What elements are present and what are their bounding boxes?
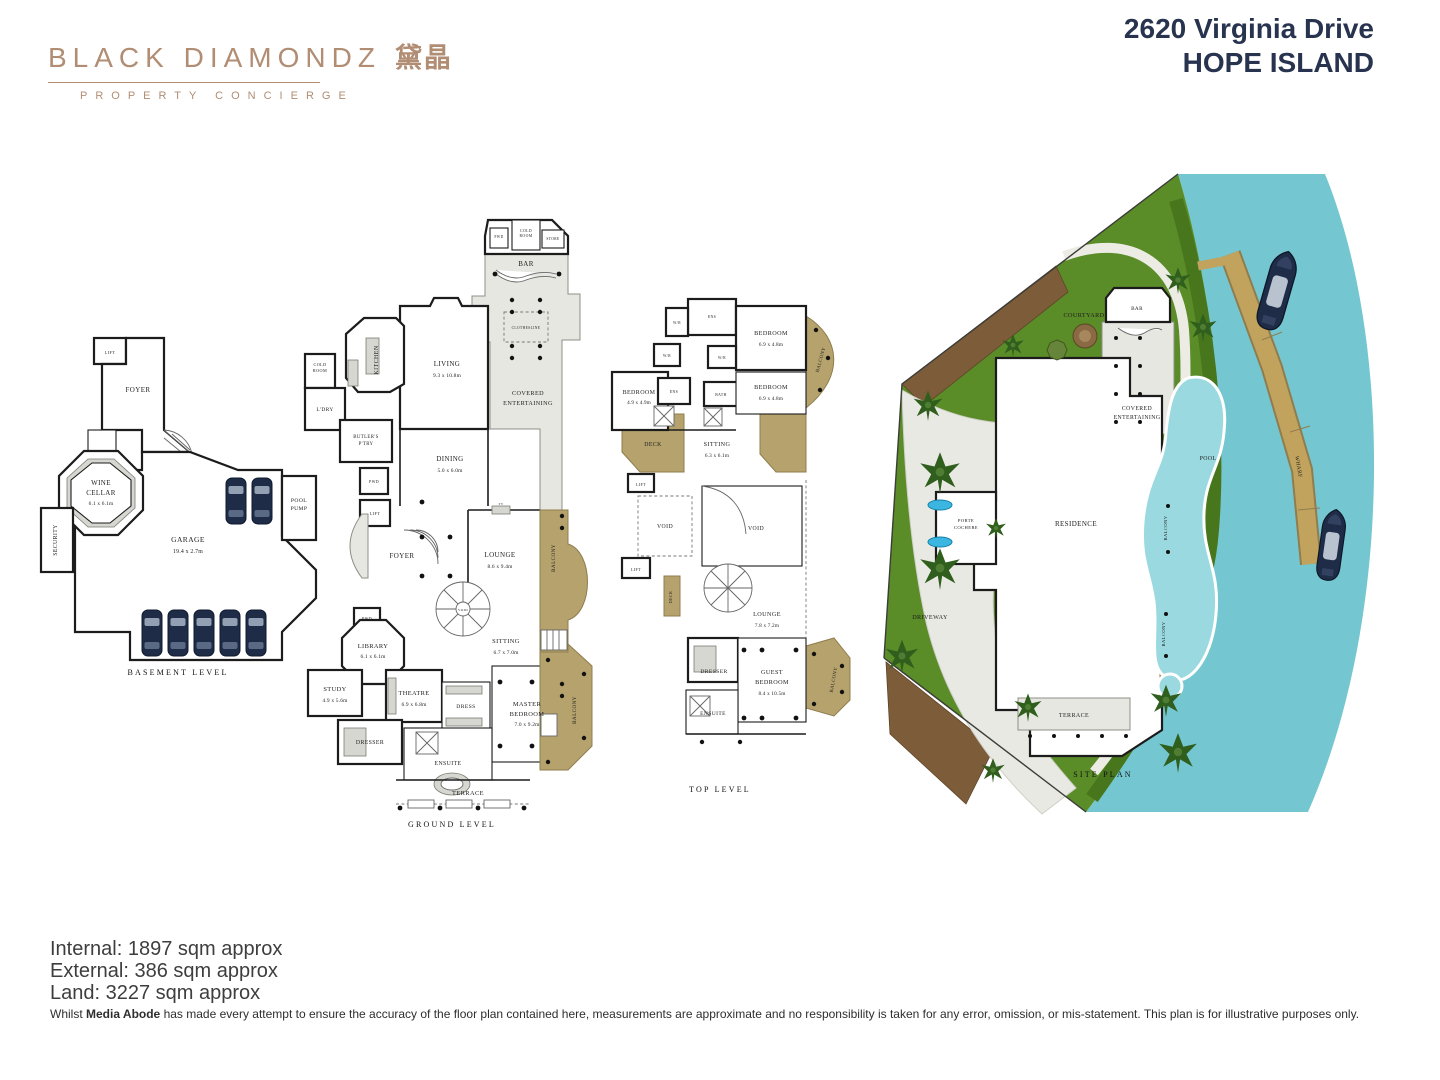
room-label: COURTYARD (1063, 312, 1104, 319)
room-label: STORE (546, 237, 560, 241)
room-label: COVERED (512, 390, 544, 397)
logo-tagline: PROPERTY CONCIERGE (48, 90, 453, 102)
room-label: 7.0 x 9.2m (514, 722, 540, 728)
room-label: DRESSER (700, 669, 727, 675)
room-label: BATH (715, 393, 727, 397)
room-label: LIBRARY (358, 643, 389, 650)
room-label: VOID (657, 524, 673, 530)
room-label: 7.8 x 7.2m (755, 623, 779, 629)
car-icon (142, 610, 162, 656)
room-label: WINE (91, 479, 111, 487)
plan-caption: SITE PLAN (1073, 770, 1133, 779)
room-label: ENTERTAINING (503, 400, 553, 407)
room-label: BAR (518, 260, 534, 268)
room-label: ROOM (313, 368, 327, 373)
floorplan-page: BLACK DIAMONDZ 黛晶 PROPERTY CONCIERGE 262… (0, 0, 1440, 1080)
plan-caption: TOP LEVEL (689, 785, 751, 794)
room-label: ENS (708, 315, 716, 319)
room-label: BEDROOM (510, 711, 545, 718)
room-label: W/R (663, 354, 671, 358)
room-label: ENSUITE (700, 711, 726, 717)
ground-balconies (540, 510, 592, 770)
room-label: CELLAR (86, 489, 116, 497)
room-label: BALCONY (572, 696, 578, 724)
car-icon (194, 610, 214, 656)
car-icon (226, 478, 246, 524)
room-label: VOID (458, 608, 468, 612)
disclaimer: Whilst Media Abode has made every attemp… (50, 1007, 1380, 1021)
room-label: DRIVEWAY (912, 614, 948, 621)
room-label: BALCONY (1161, 621, 1166, 646)
room-label: PWD (494, 235, 503, 239)
room-label: 6.9 x 4.8m (759, 342, 783, 348)
room-label: DECK (668, 591, 673, 604)
room-label: FOYER (126, 386, 151, 394)
room-label: RESIDENCE (1055, 520, 1097, 528)
room-label: 6.9 x 4.8m (759, 396, 783, 402)
room-label: LIFT (636, 482, 646, 487)
room-label: STUDY (323, 686, 346, 693)
room-label: POOL (1200, 456, 1217, 462)
room-label: KITCHEN (374, 345, 380, 374)
room-label: COCHERE (954, 525, 978, 530)
room-label: MASTER (513, 701, 542, 708)
room-label: 6.9 x 6.8m (401, 702, 427, 708)
ground-floorplan: PWDCOLDROOMSTOREBARCLOTHESLINECOLDROOMKI… (300, 214, 605, 836)
room-label: BUTLER'S (353, 435, 378, 440)
room-label: CLOTHESLINE (512, 326, 541, 330)
area-internal: Internal: 1897 sqm approx (50, 938, 1380, 960)
logo-cjk-text: 黛晶 (395, 36, 453, 75)
room-label: BEDROOM (754, 330, 788, 337)
logo-divider (48, 82, 320, 83)
room-label: 5.0 x 6.0m (437, 468, 463, 474)
room-label: DRESSER (356, 740, 384, 746)
room-label: ENTERTAINING (1114, 415, 1161, 421)
room-label: SITTING (704, 441, 731, 448)
room-label: P'TRY (359, 442, 374, 447)
car-icon (220, 610, 240, 656)
room-label: GARAGE (171, 535, 205, 544)
room-label: 4.9 x 4.9m (627, 400, 651, 406)
area-summary: Internal: 1897 sqm approx External: 386 … (50, 938, 1380, 1004)
room-label: PWD (362, 616, 372, 621)
room-label: BEDROOM (755, 679, 789, 686)
room-label: PWD (369, 479, 379, 484)
room-label: LIFT (370, 511, 380, 516)
car-icon (252, 478, 272, 524)
basement-floorplan: LIFTFOYERWINECELLAR6.1 x 6.1mSECURITYGAR… (38, 330, 328, 682)
room-label: PORTE (958, 518, 974, 523)
room-label: TERRACE (452, 790, 484, 797)
room-label: DECK (644, 442, 662, 448)
room-label: 9.3 x 10.8m (433, 373, 462, 379)
room-label: 6.3 x 6.1m (705, 453, 729, 459)
fountain-icon (928, 537, 952, 547)
room-label: 8.6 x 9.4m (487, 564, 513, 570)
fountain-icon (928, 500, 952, 510)
area-land: Land: 3227 sqm approx (50, 982, 1380, 1004)
room-label: GUEST (761, 669, 783, 676)
room-label: ENSUITE (435, 761, 462, 767)
disclaimer-brand: Media Abode (86, 1007, 160, 1021)
room-label: 6.1 x 6.1m (89, 501, 114, 507)
room-label: TV (498, 502, 503, 506)
room-label: 4.9 x 5.6m (322, 698, 348, 704)
disclaimer-prefix: Whilst (50, 1007, 86, 1021)
room-label: VOID (748, 526, 764, 532)
car-icon (168, 610, 188, 656)
room-label: 19.4 x 2.7m (173, 549, 203, 555)
room-label: SECURITY (53, 524, 59, 556)
room-label: COLD (520, 229, 532, 233)
room-label: FOYER (390, 552, 415, 560)
room-label: COVERED (1122, 406, 1152, 412)
logo-brand-text: BLACK DIAMONDZ (48, 42, 381, 74)
room-label: BALCONY (1163, 515, 1168, 540)
room-label: COLD (314, 362, 327, 367)
address-line2: HOPE ISLAND (1124, 46, 1374, 80)
plan-caption: GROUND LEVEL (408, 820, 496, 829)
room-label: SITTING (492, 638, 520, 645)
room-label: LIFT (631, 567, 641, 572)
room-label: 6.7 x 7.0m (493, 650, 519, 656)
top-floorplan: W/RENSBEDROOM6.9 x 4.8mBALCONYW/RW/RBEDR… (610, 294, 855, 800)
room-label: LIVING (434, 360, 461, 368)
room-label: DRESS (456, 704, 475, 710)
room-label: BAR (1131, 306, 1143, 312)
room-label: W/R (718, 356, 726, 360)
room-label: LOUNGE (484, 551, 515, 559)
site-plan: COURTYARDBARCOVEREDENTERTAININGRESIDENCE… (878, 170, 1398, 816)
plan-caption: BASEMENT LEVEL (127, 668, 228, 677)
room-label: L'DRY (316, 407, 333, 413)
room-label: 8.4 x 10.5m (759, 691, 786, 697)
room-label: 6.1 x 6.1m (360, 654, 386, 660)
room-label: W/R (673, 321, 681, 325)
room-label: ROOM (520, 234, 533, 238)
car-icon (246, 610, 266, 656)
room-label: BALCONY (551, 544, 557, 572)
room-label: DINING (436, 455, 463, 463)
room-label: THEATRE (398, 690, 429, 697)
room-label: TERRACE (1059, 713, 1089, 719)
room-label: LOUNGE (753, 611, 781, 618)
address-line1: 2620 Virginia Drive (1124, 12, 1374, 46)
disclaimer-rest: has made every attempt to ensure the acc… (160, 1007, 1359, 1021)
room-label: ENS (670, 390, 678, 394)
room-label: LIFT (105, 350, 115, 355)
area-external: External: 386 sqm approx (50, 960, 1380, 982)
brand-logo: BLACK DIAMONDZ 黛晶 PROPERTY CONCIERGE (48, 36, 453, 102)
property-address: 2620 Virginia Drive HOPE ISLAND (1124, 12, 1374, 80)
room-label: BEDROOM (623, 390, 656, 396)
room-label: BEDROOM (754, 384, 788, 391)
footer: Internal: 1897 sqm approx External: 386 … (50, 938, 1380, 1021)
